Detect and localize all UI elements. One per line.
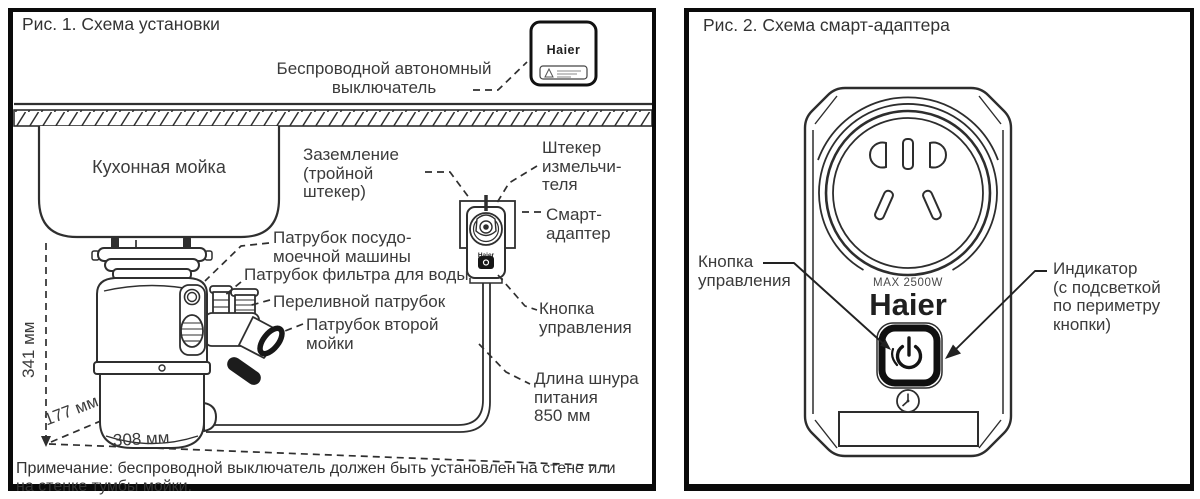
cord-length-label: Длина шнура питания 850 мм bbox=[534, 370, 639, 426]
control-button-label: Кнопка управления bbox=[698, 253, 791, 290]
water-filter-pipe-label: Патрубок фильтра для воды bbox=[244, 266, 469, 285]
disposal-unit bbox=[92, 237, 216, 448]
figure1-title: Рис. 1. Схема установки bbox=[22, 15, 220, 34]
bottom-plate bbox=[839, 412, 978, 446]
wireless-switch-label: Беспроводной автономный выключатель bbox=[259, 60, 509, 97]
dimension-height: 341 мм bbox=[20, 306, 39, 378]
countertop bbox=[14, 104, 652, 126]
haier-logo-large: Haier bbox=[841, 289, 975, 320]
kitchen-sink bbox=[39, 126, 279, 237]
adapter-drawing bbox=[689, 12, 1190, 484]
haier-logo: Haier bbox=[531, 41, 596, 60]
grinder-plug-label: Штекер измельчи- теля bbox=[542, 139, 622, 195]
clock-icon bbox=[897, 390, 919, 412]
control-button-label: Кнопка управления bbox=[539, 300, 632, 337]
panel-adapter-scheme: Рис. 2. Схема смарт-адаптера MAX 2500W H… bbox=[684, 8, 1194, 491]
manual-figures-sheet: Рис. 1. Схема установки Беспроводной авт… bbox=[0, 0, 1200, 499]
installation-note: Примечание: беспроводной выключатель дол… bbox=[16, 460, 650, 496]
grounding-label: Заземление (тройной штекер) bbox=[303, 146, 399, 202]
second-sink-pipe-label: Патрубок второй мойки bbox=[306, 316, 439, 353]
control-button bbox=[877, 323, 942, 388]
cord-outlet bbox=[204, 403, 216, 431]
pipe-collar bbox=[224, 354, 263, 387]
dimension-width: 308 мм bbox=[113, 429, 170, 450]
panel-installation-scheme: Рис. 1. Схема установки Беспроводной авт… bbox=[8, 8, 656, 491]
sink-label: Кухонная мойка bbox=[79, 158, 239, 177]
dimension-arrow bbox=[41, 436, 51, 447]
figure2-title: Рис. 2. Схема смарт-адаптера bbox=[703, 16, 950, 35]
overflow-pipe-label: Переливной патрубок bbox=[273, 293, 445, 312]
indicator-label: Индикатор (с подсветкой по периметру кно… bbox=[1053, 260, 1161, 334]
dishwasher-pipe-label: Патрубок посудо- моечной машины bbox=[273, 229, 412, 266]
haier-logo-small: Haier bbox=[471, 247, 501, 266]
smart-adapter-label: Смарт- адаптер bbox=[546, 206, 611, 243]
